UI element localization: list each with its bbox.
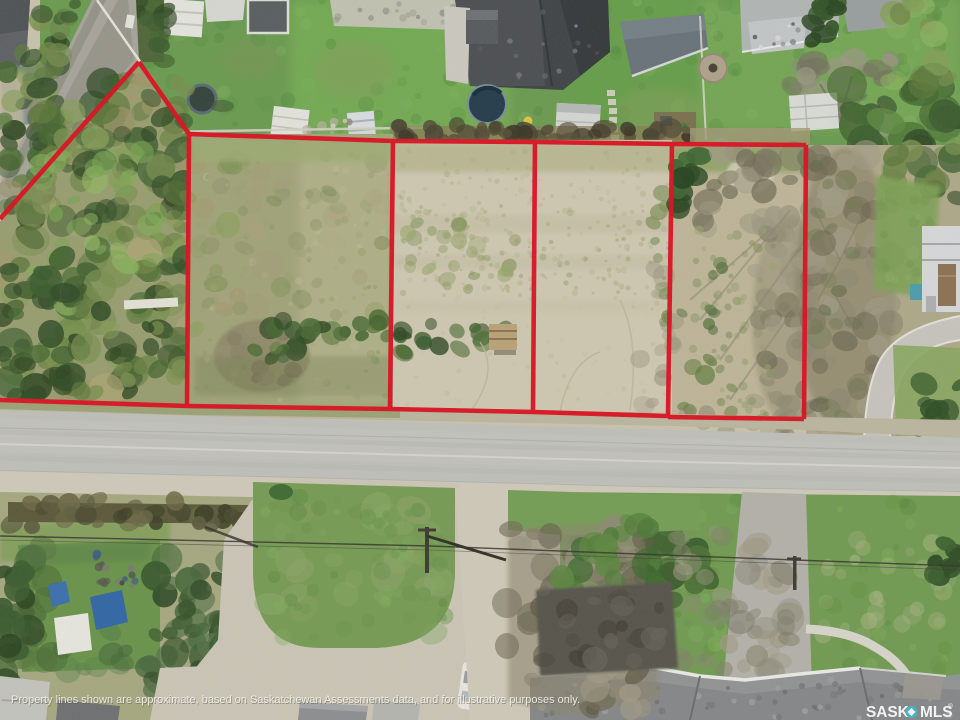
svg-text:®: ® [948, 702, 953, 710]
svg-text:SASK: SASK [866, 704, 909, 720]
svg-text:Property lines shown are appro: Property lines shown are approximate, ba… [11, 694, 580, 706]
